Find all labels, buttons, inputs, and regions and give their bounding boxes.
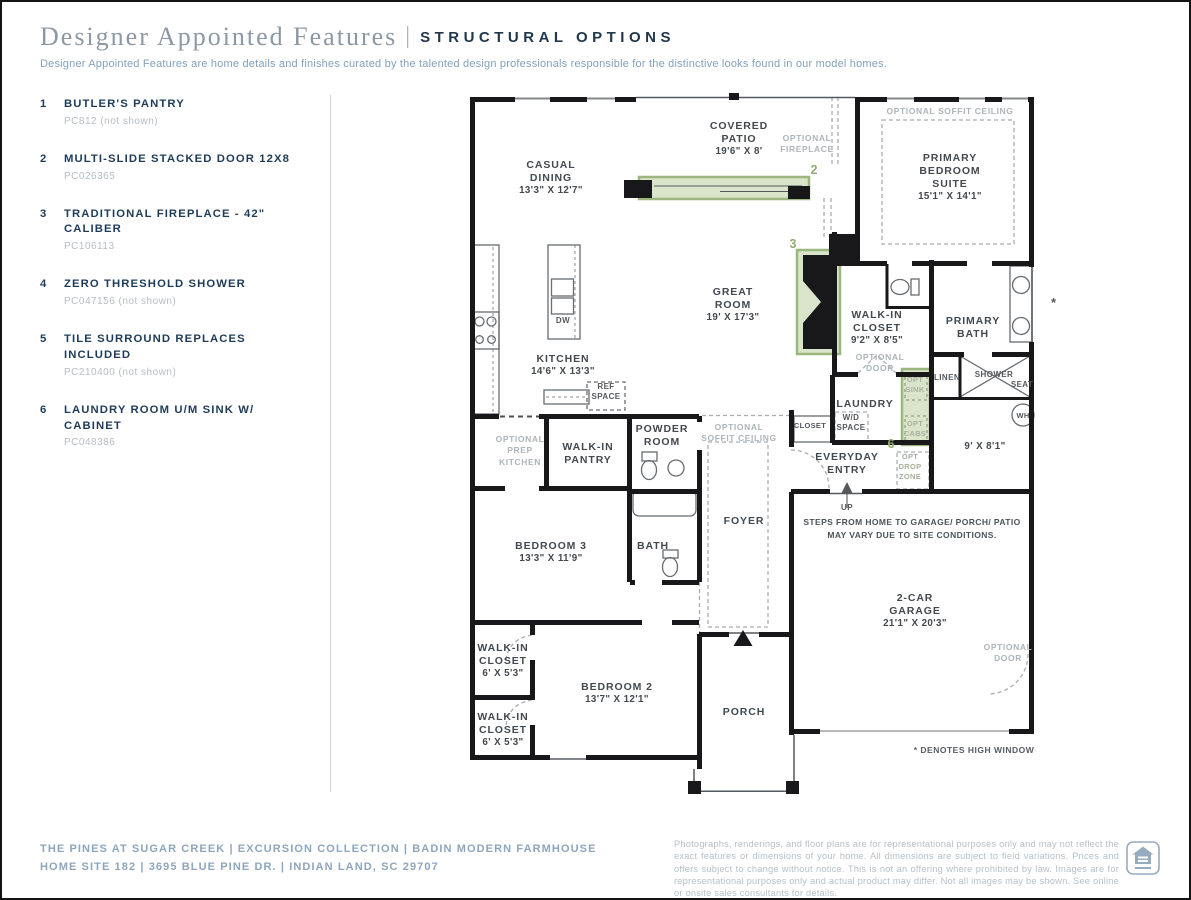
feature-code: PC106113 <box>64 241 312 252</box>
label-shower: SHOWER <box>975 370 1013 380</box>
label-linen: LINEN <box>934 373 960 383</box>
feature-title: MULTI-SLIDE STACKED DOOR 12X8 <box>64 152 312 168</box>
room-label-covered-patio: COVERED PATIO 19'6" X 8' <box>710 120 768 158</box>
option-marker-2: 2 <box>811 163 818 179</box>
feature-title: LAUNDRY ROOM U/M SINK W/ CABINET <box>64 403 312 435</box>
label-opt-cabs: OPT CABS <box>904 419 926 439</box>
label-optional-fireplace: OPTIONAL FIREPLACE <box>780 133 834 156</box>
room-label-primary-closet: WALK-IN CLOSET 9'2" X 8'5" <box>851 309 903 347</box>
label-closet: CLOSET <box>794 421 826 430</box>
feature-number: 3 <box>40 207 64 253</box>
feature-list: 1 BUTLER'S PANTRY PC812 (not shown) 2 MU… <box>40 97 312 473</box>
label-optional-door-garage: OPTIONAL DOOR <box>984 642 1033 665</box>
option-marker-3: 3 <box>790 237 797 253</box>
feature-item: 1 BUTLER'S PANTRY PC812 (not shown) <box>40 97 312 127</box>
feature-item: 5 TILE SURROUND REPLACES INCLUDED PC2104… <box>40 332 312 378</box>
label-wd-space: W/D SPACE <box>837 413 866 433</box>
feature-item: 4 ZERO THRESHOLD SHOWER PC047156 (not sh… <box>40 277 312 307</box>
label-steps-note: STEPS FROM HOME TO GARAGE/ PORCH/ PATIO … <box>803 516 1020 542</box>
room-label-foyer: FOYER <box>724 515 765 528</box>
feature-number: 1 <box>40 97 64 127</box>
header: Designer Appointed Features|STRUCTURAL O… <box>40 22 675 52</box>
equal-housing-logo-icon <box>1126 841 1160 875</box>
vertical-divider <box>330 95 331 792</box>
feature-item: 2 MULTI-SLIDE STACKED DOOR 12X8 PC026365 <box>40 152 312 182</box>
room-label-walk-in-closet-1: WALK-IN CLOSET 6' X 5'3" <box>477 642 528 680</box>
room-label-bedroom2: BEDROOM 2 13'7" X 12'1" <box>581 681 653 706</box>
option-marker-6: 6 <box>888 437 895 453</box>
room-label-porch: PORCH <box>723 706 765 719</box>
label-seat: SEAT <box>1011 380 1033 390</box>
feature-item: 6 LAUNDRY ROOM U/M SINK W/ CABINET PC048… <box>40 403 312 449</box>
feature-number: 5 <box>40 332 64 378</box>
room-label-casual-dining: CASUAL DINING 13'3" X 12'7" <box>519 159 583 197</box>
feature-code: PC026365 <box>64 171 312 182</box>
high-window-asterisk: * <box>1051 295 1057 311</box>
label-water-heater: WH <box>1016 411 1029 420</box>
page-subtitle-tag: STRUCTURAL OPTIONS <box>420 29 675 46</box>
room-label-everyday-entry: EVERYDAY ENTRY <box>815 451 879 477</box>
label-up: UP <box>841 503 853 513</box>
brochure-page: Designer Appointed Features|STRUCTURAL O… <box>0 0 1191 900</box>
room-label-primary-bedroom: PRIMARY BEDROOM SUITE 15'1" X 14'1" <box>918 152 982 204</box>
feature-title: BUTLER'S PANTRY <box>64 97 312 113</box>
page-title: Designer Appointed Features <box>40 22 397 51</box>
feature-title: TILE SURROUND REPLACES INCLUDED <box>64 332 312 364</box>
label-optional-door-closet: OPTIONAL DOOR <box>856 352 905 375</box>
label-optional-soffit-primary: OPTIONAL SOFFIT CEILING <box>887 106 1014 117</box>
label-opt-sink: OPT SINK <box>905 375 924 395</box>
footer-line2: HOME SITE 182 | 3695 BLUE PINE DR. | IND… <box>40 859 597 877</box>
header-description: Designer Appointed Features are home det… <box>40 58 887 70</box>
label-dishwasher: DW <box>556 316 570 326</box>
room-label-primary-bath: PRIMARY BATH <box>946 315 1000 341</box>
label-ref-space: REF SPACE <box>592 382 621 402</box>
room-label-kitchen: KITCHEN 14'6" X 13'3" <box>531 353 595 378</box>
room-label-powder-room: POWDER ROOM <box>636 423 689 449</box>
feature-code: PC048386 <box>64 437 312 448</box>
room-label-laundry: LAUNDRY <box>836 398 893 411</box>
feature-number: 2 <box>40 152 64 182</box>
label-optional-prep-kitchen: OPTIONAL PREP KITCHEN <box>496 434 545 468</box>
feature-title: TRADITIONAL FIREPLACE - 42" CALIBER <box>64 207 312 239</box>
feature-code: PC210400 (not shown) <box>64 367 312 378</box>
room-label-great-room: GREAT ROOM 19' X 17'3" <box>707 286 760 324</box>
feature-item: 3 TRADITIONAL FIREPLACE - 42" CALIBER PC… <box>40 207 312 253</box>
up-arrow <box>841 482 853 494</box>
feature-title: ZERO THRESHOLD SHOWER <box>64 277 312 293</box>
feature-number: 4 <box>40 277 64 307</box>
title-separator: | <box>405 23 410 49</box>
room-label-flex-room: 9' X 8'1" <box>964 441 1005 453</box>
footer-line1: THE PINES AT SUGAR CREEK | EXCURSION COL… <box>40 841 597 859</box>
feature-code: PC812 (not shown) <box>64 116 312 127</box>
feature-number: 6 <box>40 403 64 449</box>
feature-code: PC047156 (not shown) <box>64 296 312 307</box>
room-label-walk-in-pantry: WALK-IN PANTRY <box>562 441 613 467</box>
floor-plan: CASUAL DINING 13'3" X 12'7" COVERED PATI… <box>462 90 1087 807</box>
room-label-bath: BATH <box>637 540 669 553</box>
label-opt-drop-zone: OPT DROP ZONE <box>899 452 922 481</box>
room-label-garage: 2-CAR GARAGE 21'1" X 20'3" <box>883 592 947 630</box>
footer-community-info: THE PINES AT SUGAR CREEK | EXCURSION COL… <box>40 841 597 876</box>
footer-disclaimer: Photographs, renderings, and floor plans… <box>674 838 1119 900</box>
label-optional-soffit-foyer: OPTIONAL SOFFIT CEILING <box>701 422 776 445</box>
room-label-walk-in-closet-2: WALK-IN CLOSET 6' X 5'3" <box>477 711 528 749</box>
room-label-bedroom3: BEDROOM 3 13'3" X 11'9" <box>515 540 587 565</box>
label-high-window-note: * DENOTES HIGH WINDOW <box>914 745 1035 756</box>
